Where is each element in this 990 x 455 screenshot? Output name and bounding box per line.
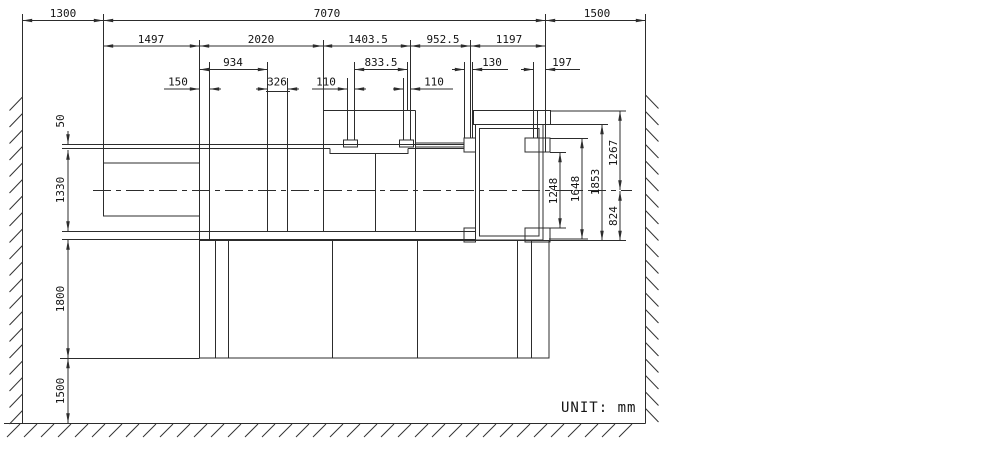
machine-layout-technical-drawing: 1300 7070 1500 1497 2020 1403.5 952.5 11… (0, 0, 990, 451)
machine-base (200, 241, 550, 359)
floor-hatching (7, 424, 632, 437)
dim-1853: 1853 (589, 169, 602, 196)
right-wall-hatching (646, 95, 659, 422)
dim-824: 824 (607, 206, 620, 226)
left-motor-box (104, 163, 200, 216)
clamp-box-inner (480, 129, 540, 237)
dim-1248: 1248 (547, 178, 560, 205)
clamp-back-plate (474, 111, 551, 125)
clamp-flange-top-right (525, 138, 550, 152)
machine-elevation (62, 111, 551, 359)
leg1-foot (344, 140, 358, 147)
dim-1648: 1648 (569, 176, 582, 203)
dim-1403-5: 1403.5 (348, 33, 388, 46)
dim-833-5: 833.5 (364, 56, 397, 69)
dim-934: 934 (223, 56, 243, 69)
drawing-canvas: 1300 7070 1500 1497 2020 1403.5 952.5 11… (0, 0, 990, 451)
dim-50: 50 (54, 114, 67, 127)
dim-1497: 1497 (138, 33, 165, 46)
left-wall-hatching (10, 97, 23, 424)
dim-1500-top: 1500 (584, 7, 611, 20)
dim-110-right: 110 (424, 76, 444, 89)
extension-lines (60, 14, 626, 359)
unit-note: UNIT: mm (561, 400, 636, 416)
clamp-box-outer (476, 125, 544, 241)
dim-197: 197 (552, 56, 572, 69)
dim-1267: 1267 (607, 140, 620, 167)
dim-7070: 7070 (314, 7, 341, 20)
dim-150: 150 (168, 76, 188, 89)
dim-952-5: 952.5 (426, 33, 459, 46)
dim-326: 326 (267, 76, 287, 89)
dim-1800: 1800 (54, 286, 67, 313)
dim-1500-bottom: 1500 (54, 378, 67, 405)
dim-1330: 1330 (54, 177, 67, 204)
dim-1197: 1197 (496, 33, 523, 46)
dim-130: 130 (482, 56, 502, 69)
dim-2020: 2020 (248, 33, 275, 46)
clamp-flange-top-left (464, 138, 476, 152)
dim-110-left: 110 (316, 76, 336, 89)
dim-1300: 1300 (50, 7, 77, 20)
dimension-labels: 1300 7070 1500 1497 2020 1403.5 952.5 11… (50, 7, 620, 404)
plate-1 (200, 145, 210, 240)
leg2-foot (400, 140, 414, 147)
channel-recess (330, 149, 408, 154)
